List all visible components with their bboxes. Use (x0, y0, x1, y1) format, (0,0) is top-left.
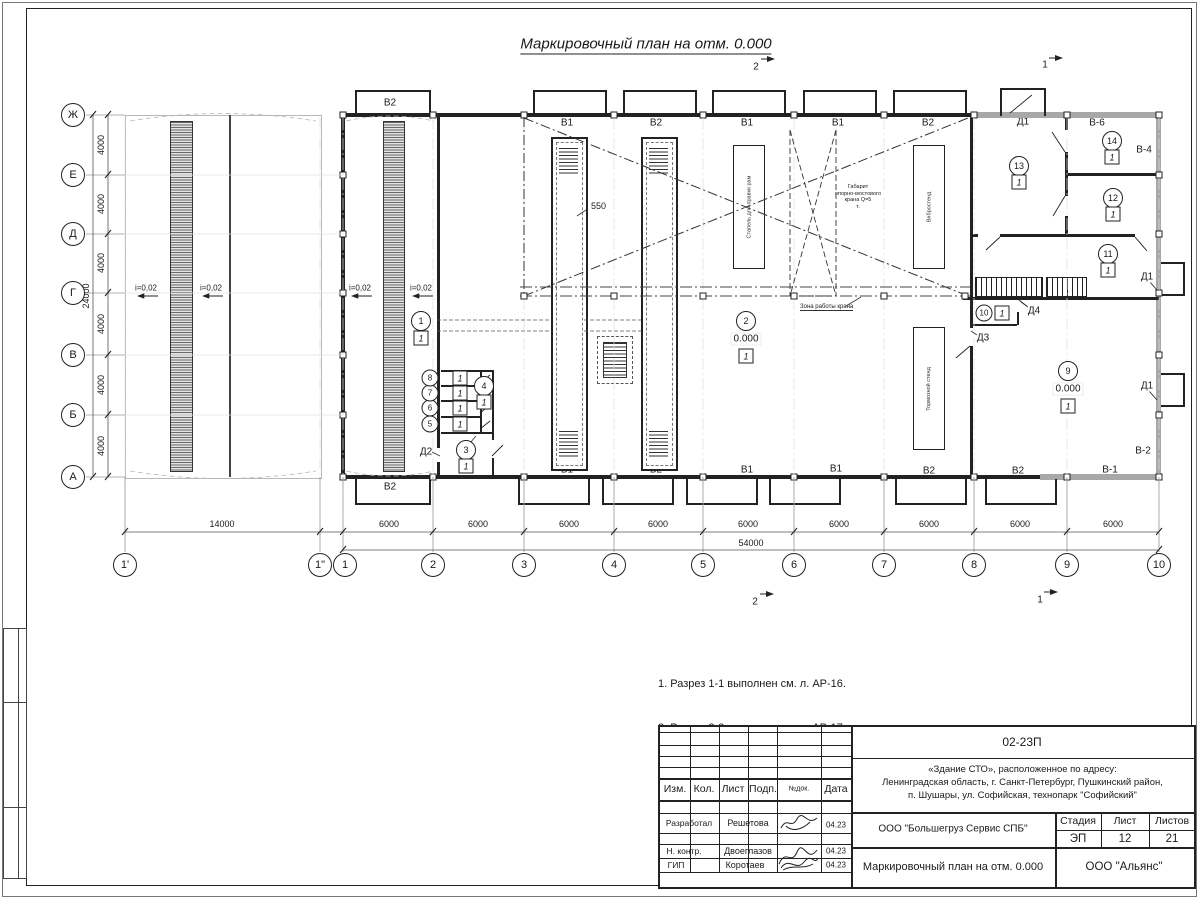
column-marker (700, 112, 707, 119)
tb-sheets-label: Листов (1155, 815, 1189, 827)
floor-type-10: 1 (995, 306, 1010, 321)
equipment-stapel-label: Стапель для правки рам (746, 176, 752, 239)
column-marker (340, 290, 347, 297)
axis-bubble-2: 2 (421, 553, 445, 577)
column-marker (340, 231, 347, 238)
wall-under-stairs (963, 297, 1159, 300)
window-label: В-6 (1089, 118, 1105, 129)
column-marker (611, 112, 618, 119)
tb-sheet-label: Лист (1114, 815, 1137, 827)
stairs-flight (1046, 277, 1087, 297)
door-label: Д1 (1141, 272, 1153, 283)
axis-bubble-1pp: 1" (308, 553, 332, 577)
axis-bubble-6: 6 (782, 553, 806, 577)
column-marker (700, 474, 707, 481)
pit-ladder (559, 431, 578, 459)
section-mark-2: 2 (752, 597, 758, 608)
floor-type-5: 1 (453, 417, 468, 432)
title-block: Изм. Кол. Лист №док. Подп. Дата Разработ… (658, 725, 1196, 889)
wall-bottom-right (1040, 474, 1161, 480)
axis-bubble-9: 9 (1055, 553, 1079, 577)
column-marker (971, 112, 978, 119)
entrance-porch-d1 (1000, 88, 1046, 116)
column-marker (521, 474, 528, 481)
wall-room10 (1017, 312, 1019, 325)
tb-object-line: Ленинградская область, г. Санкт-Петербур… (853, 776, 1192, 789)
tb-date: 04.23 (826, 847, 846, 856)
tb-sheets-value: 21 (1166, 833, 1179, 845)
equipment-vibro-label: Вибростенд (926, 192, 932, 223)
floor-type-12: 1 (1106, 207, 1121, 222)
tb-name: Решетова (727, 818, 768, 828)
porch (602, 479, 674, 505)
column-marker (430, 112, 437, 119)
axis-bubble-d: Д (61, 222, 85, 246)
column-marker (430, 474, 437, 481)
signature (776, 844, 820, 872)
tb-name: Коротаев (726, 860, 765, 870)
window-label: В1 (830, 464, 842, 475)
slope-label: i=0,02 (200, 284, 222, 293)
room-tag-14: 14 (1102, 131, 1122, 151)
floor-type-4: 1 (477, 395, 492, 410)
tb-role: Разработал (666, 818, 712, 828)
pit-ladder (559, 148, 578, 174)
elevation-mark: 0.000 (1052, 383, 1083, 396)
pit-ladder (649, 148, 668, 174)
column-marker (521, 112, 528, 119)
inspection-pit (641, 137, 678, 471)
column-marker (1156, 412, 1163, 419)
tb-object-line: п. Шушары, ул. Софийская, технопарк "Соф… (853, 789, 1192, 802)
column-marker (1156, 112, 1163, 119)
room-tag-9: 9 (1058, 361, 1078, 381)
porch (518, 479, 590, 505)
column-marker (1156, 474, 1163, 481)
elevation-mark: 0.000 (730, 333, 761, 346)
section-mark-2: 2 (753, 62, 759, 73)
side-stamp-cell (3, 628, 27, 704)
porch (895, 479, 967, 505)
dim-4000: 4000 (96, 194, 106, 214)
floor-type-6: 1 (453, 401, 468, 416)
door-label: Д3 (977, 333, 989, 344)
tb-date: 04.23 (826, 861, 846, 870)
floor-type-2: 1 (739, 349, 754, 364)
dim-4000: 4000 (96, 375, 106, 395)
wall-corridor (1065, 152, 1068, 196)
column-marker (1156, 290, 1163, 297)
canopy-ridge-line (229, 115, 231, 477)
door-label: Д2 (420, 447, 432, 458)
window-label: В1 (741, 465, 753, 476)
room-tag-5: 5 (422, 416, 439, 433)
column-marker (611, 474, 618, 481)
column-marker (791, 474, 798, 481)
wall-axis2 (437, 462, 440, 477)
tb-role: Н. контр. (666, 846, 701, 856)
door-label: Д1 (1141, 381, 1153, 392)
axis-bubble-b: Б (61, 403, 85, 427)
equipment-vibro: Вибростенд (913, 145, 945, 269)
room-tag-11: 11 (1098, 244, 1118, 264)
column-marker (1156, 172, 1163, 179)
room-tag-4: 4 (474, 376, 494, 396)
dim-6000: 6000 (1010, 519, 1030, 529)
wall-wing-left (970, 113, 973, 328)
pit-inner-edge (646, 142, 673, 466)
tb-object: «Здание СТО», расположенное по адресу: Л… (853, 763, 1192, 802)
inspection-pit (551, 137, 588, 471)
floor-type-9: 1 (1061, 399, 1076, 414)
column-marker (340, 172, 347, 179)
window-label: В-2 (1135, 446, 1151, 457)
slope-label: i=0,02 (349, 284, 371, 293)
axis-bubble-3: 3 (512, 553, 536, 577)
axis-bubble-1: 1 (333, 553, 357, 577)
wall-12-11 (1000, 234, 1135, 237)
column-marker (340, 352, 347, 359)
dim-4000: 4000 (96, 314, 106, 334)
equipment-tormoz-label: Тормозной стенд (926, 367, 932, 411)
dim-54000: 54000 (736, 538, 765, 548)
door-label: Д1 (1017, 117, 1029, 128)
window-label: В-4 (1136, 145, 1152, 156)
dim-6000: 6000 (468, 519, 488, 529)
floor-type-14: 1 (1105, 150, 1120, 165)
wall-12-11 (970, 234, 978, 237)
dim-4000: 4000 (96, 436, 106, 456)
dim-4000: 4000 (96, 135, 106, 155)
tb-sheet-value: 12 (1119, 833, 1132, 845)
drawing-sheet: Маркировочный план на отм. 0.000 (0, 0, 1200, 900)
pit-width-dim: 550 (591, 201, 606, 211)
tb-name: Двоеглазов (724, 846, 772, 856)
floor-type-3: 1 (459, 459, 474, 474)
column-marker (340, 474, 347, 481)
room-tag-7: 7 (422, 385, 439, 402)
room-tag-8: 8 (422, 370, 439, 387)
dim-6000: 6000 (559, 519, 579, 529)
column-marker (1064, 112, 1071, 119)
column-marker (971, 474, 978, 481)
column-marker (881, 112, 888, 119)
room-tag-12: 12 (1103, 188, 1123, 208)
tb-firm: ООО "Альянс" (1086, 861, 1163, 873)
tb-company: ООО "Большегруз Сервис СПБ" (878, 824, 1027, 835)
column-marker (1156, 352, 1163, 359)
side-stamp-cell (3, 702, 27, 809)
dim-6000: 6000 (919, 519, 939, 529)
axis-bubble-v: В (61, 343, 85, 367)
tb-col-podp: Подп. (749, 783, 777, 795)
entrance-porch-d1 (1161, 262, 1185, 296)
entrance-porch-d1 (1161, 373, 1185, 407)
porch (355, 479, 431, 505)
crane-clearance-note: Габарит опорно-мостового крана Q=5 т. (832, 184, 884, 210)
tb-stage-label: Стадия (1060, 815, 1096, 827)
tb-drawing-title: Маркировочный план на отм. 0.000 (863, 861, 1043, 873)
porch (686, 479, 758, 505)
tb-object-line: «Здание СТО», расположенное по адресу: (853, 763, 1192, 776)
column-marker (791, 112, 798, 119)
axis-bubble-zh: Ж (61, 103, 85, 127)
floor-type-11: 1 (1101, 263, 1116, 278)
wall-bottom (341, 475, 1040, 479)
column-marker (340, 112, 347, 119)
note-line: 1. Разрез 1-1 выполнен см. л. АР-16. (658, 677, 912, 692)
tb-col-data: Дата (824, 783, 847, 795)
window-label: В2 (650, 118, 662, 129)
tb-col-kol: Кол. (694, 783, 715, 795)
floor-type-7: 1 (453, 386, 468, 401)
crane-zone-label: Зона работы крана (800, 304, 853, 311)
axis-bubble-5: 5 (691, 553, 715, 577)
wall-axis2 (437, 113, 440, 448)
axis-bubble-g: Г (61, 281, 85, 305)
tb-col-izm: Изм. (664, 783, 687, 795)
tb-col-list: Лист (722, 783, 745, 795)
room-tag-10: 10 (976, 305, 993, 322)
wall-cluster (441, 432, 492, 434)
dim-6000: 6000 (738, 519, 758, 529)
stairs-flight (975, 277, 1043, 297)
pit-ladder (649, 431, 668, 459)
tb-col-ndok: №док. (789, 786, 810, 793)
axis-bubble-8: 8 (962, 553, 986, 577)
floor-type-8: 1 (453, 371, 468, 386)
floor-type-1: 1 (414, 331, 429, 346)
room-tag-3: 3 (456, 440, 476, 460)
dim-6000: 6000 (1103, 519, 1123, 529)
axis-bubble-1p: 1' (113, 553, 137, 577)
wall-wing-left (970, 346, 973, 477)
axis-bubble-4: 4 (602, 553, 626, 577)
pit-inner-edge (556, 142, 583, 466)
dim-4000: 4000 (96, 253, 106, 273)
wall-room10 (970, 324, 1017, 326)
axis-bubble-e: Е (61, 163, 85, 187)
floor-type-13: 1 (1012, 175, 1027, 190)
tb-role: ГИП (668, 860, 685, 870)
column-marker (1064, 474, 1071, 481)
crane-clearance-line: т. (832, 204, 884, 211)
window-label: В1 (832, 118, 844, 129)
slope-label: i=0,02 (410, 284, 432, 293)
dim-14000: 14000 (209, 519, 234, 529)
wall-corridor (1065, 216, 1068, 235)
door-label: Д4 (1028, 306, 1040, 317)
axis-bubble-10: 10 (1147, 553, 1171, 577)
tb-stage-value: ЭП (1070, 833, 1087, 845)
porch (769, 479, 841, 505)
equipment-tormoz: Тормозной стенд (913, 327, 945, 450)
dim-6000: 6000 (829, 519, 849, 529)
window-label: В1 (561, 118, 573, 129)
ramp-strip (170, 121, 193, 472)
axis-bubble-a: А (61, 465, 85, 489)
room-tag-1: 1 (411, 311, 431, 331)
canopy-outline (125, 115, 322, 479)
room-tag-2: 2 (736, 311, 756, 331)
ramp-strip (383, 121, 405, 472)
side-stamp-cell (3, 807, 27, 879)
slope-label: i=0,02 (135, 284, 157, 293)
room-tag-13: 13 (1009, 156, 1029, 176)
column-marker (1156, 231, 1163, 238)
window-label: В2 (922, 118, 934, 129)
room-tag-6: 6 (422, 400, 439, 417)
signature (778, 814, 820, 832)
window-label: В1 (741, 118, 753, 129)
wall-14-12 (1065, 173, 1157, 176)
tb-date: 04.23 (826, 821, 846, 830)
pit-central-stair (603, 342, 627, 378)
column-marker (881, 474, 888, 481)
tb-doc-number: 02-23П (1002, 735, 1041, 749)
dim-6000: 6000 (379, 519, 399, 529)
section-mark-1: 1 (1042, 60, 1048, 71)
dim-6000: 6000 (648, 519, 668, 529)
porch (985, 479, 1057, 505)
column-marker (340, 412, 347, 419)
axis-bubble-7: 7 (872, 553, 896, 577)
section-mark-1: 1 (1037, 595, 1043, 606)
wall-cluster (492, 458, 494, 477)
equipment-stapel: Стапель для правки рам (733, 145, 765, 269)
